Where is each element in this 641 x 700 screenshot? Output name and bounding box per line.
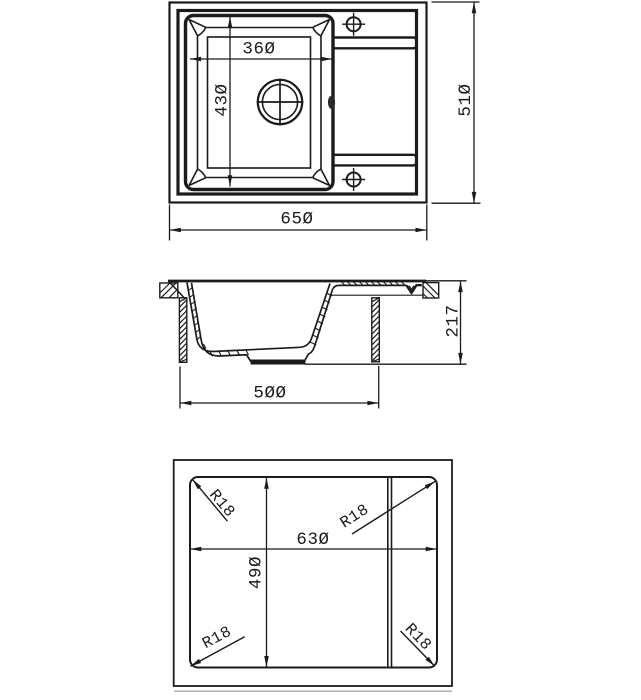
- svg-text:63Ø: 63Ø: [296, 530, 329, 550]
- svg-text:5ØØ: 5ØØ: [253, 384, 286, 404]
- svg-text:R18: R18: [205, 486, 238, 521]
- svg-text:43Ø: 43Ø: [213, 83, 233, 116]
- svg-text:51Ø: 51Ø: [456, 83, 476, 116]
- svg-text:R18: R18: [337, 501, 372, 533]
- svg-text:65Ø: 65Ø: [280, 210, 313, 230]
- svg-text:36Ø: 36Ø: [242, 40, 275, 60]
- svg-text:217: 217: [444, 304, 464, 337]
- svg-text:R18: R18: [199, 623, 234, 653]
- svg-text:R18: R18: [401, 620, 435, 655]
- svg-text:49Ø: 49Ø: [247, 556, 267, 589]
